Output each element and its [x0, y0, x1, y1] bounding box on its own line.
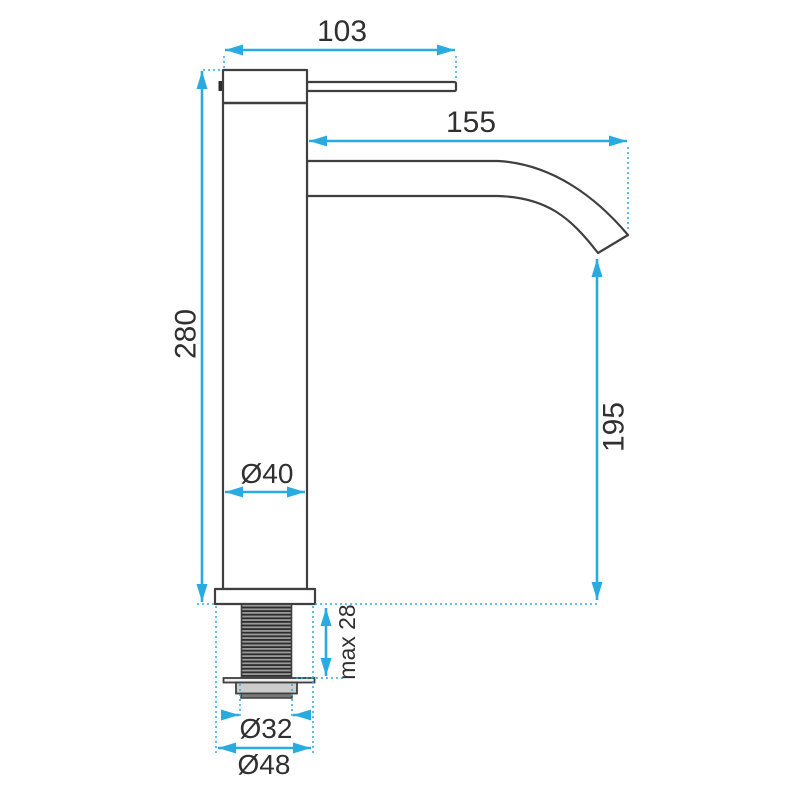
- nut-collar: [241, 694, 292, 699]
- dim-mounting-thickness-label: max 28: [334, 604, 360, 679]
- dim-body-height-label: 280: [170, 309, 203, 359]
- dim-base-diameter-label: Ø48: [238, 749, 291, 780]
- dim-body-height: 280: [170, 70, 222, 604]
- dim-body-diameter-label: Ø40: [241, 458, 294, 489]
- dim-mounting-thickness: max 28: [296, 604, 360, 679]
- technical-drawing-canvas: 103 155 280 195 Ø40 max 28 Ø32 Ø48: [0, 0, 800, 800]
- mounting-thread: [242, 604, 292, 678]
- dim-handle-length-label: 103: [317, 15, 367, 48]
- mounting-nut: [236, 683, 297, 694]
- dim-spout-height-label: 195: [598, 402, 631, 452]
- faucet-body: [223, 70, 307, 589]
- faucet-dimension-drawing: 103 155 280 195 Ø40 max 28 Ø32 Ø48: [0, 0, 800, 800]
- lever-handle: [307, 82, 456, 91]
- dim-spout-height: 195: [315, 259, 631, 604]
- spout: [307, 161, 628, 253]
- dim-spout-reach-label: 155: [446, 106, 496, 139]
- dim-thread-diameter-label: Ø32: [240, 713, 293, 744]
- base-plate: [215, 589, 315, 604]
